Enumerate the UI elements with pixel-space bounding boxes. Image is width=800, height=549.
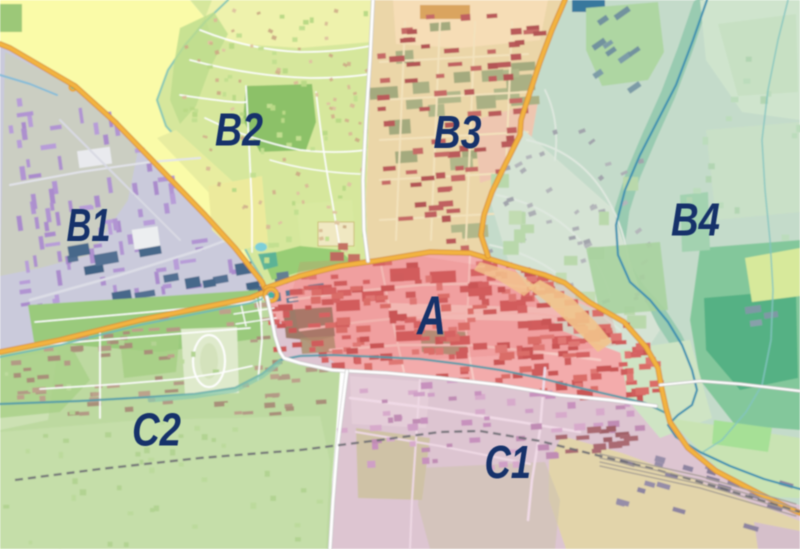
svg-text:B4: B4	[671, 193, 720, 245]
svg-text:A: A	[416, 284, 446, 346]
svg-text:C2: C2	[132, 403, 181, 455]
svg-text:B2: B2	[215, 104, 263, 156]
svg-text:B1: B1	[67, 199, 111, 251]
svg-text:C1: C1	[485, 436, 532, 488]
svg-text:B3: B3	[434, 106, 482, 158]
